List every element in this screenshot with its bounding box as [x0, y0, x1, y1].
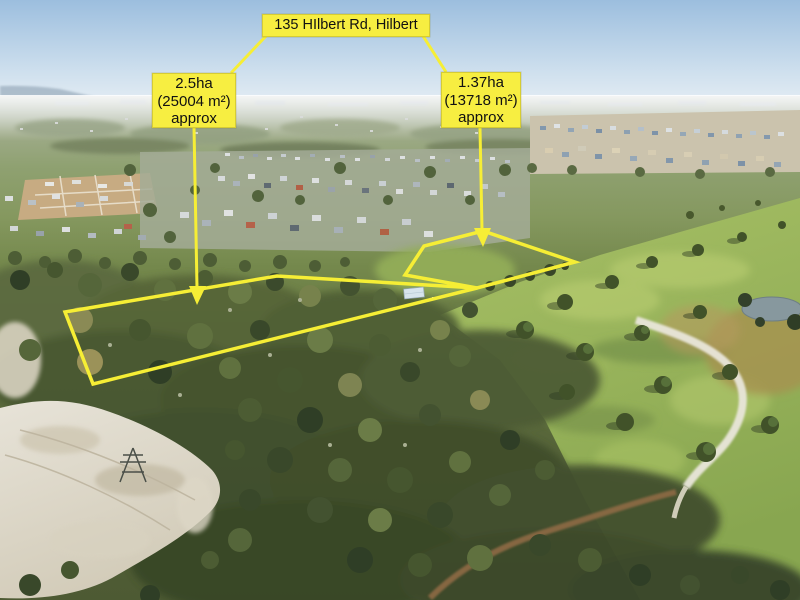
shed	[404, 287, 425, 299]
address-text: 135 HIlbert Rd, Hilbert	[274, 17, 417, 33]
right-construction-area	[527, 110, 800, 179]
address-label: 135 HIlbert Rd, Hilbert	[262, 14, 430, 37]
area-label-small-parcel: 1.37ha (13718 m²) approx	[441, 72, 521, 128]
aerial-photo-listing: 135 HIlbert Rd, Hilbert 2.5ha (25004 m²)…	[0, 0, 800, 600]
area-ha: 2.5ha	[153, 75, 235, 93]
area-ha: 1.37ha	[442, 74, 520, 92]
area-approx: approx	[153, 110, 235, 128]
area-label-large-parcel: 2.5ha (25004 m²) approx	[152, 73, 236, 128]
area-m2: (25004 m²)	[153, 93, 235, 111]
left-construction-site	[18, 173, 158, 220]
area-approx: approx	[442, 109, 520, 127]
aerial-photograph	[0, 0, 800, 600]
area-m2: (13718 m²)	[442, 92, 520, 110]
